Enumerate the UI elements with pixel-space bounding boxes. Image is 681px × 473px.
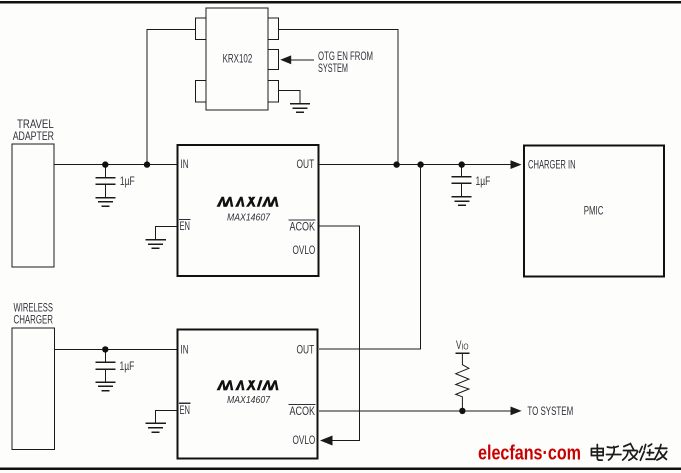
svg-text:SYSTEM: SYSTEM [318,63,348,75]
svg-text:IN: IN [181,159,189,171]
svg-text:KRX102: KRX102 [223,54,253,66]
svg-text:EN: EN [180,221,191,233]
svg-text:elecfans·com: elecfans·com [478,442,581,464]
svg-text:OUT: OUT [297,344,315,356]
svg-text:OTG EN FROM: OTG EN FROM [318,51,373,63]
svg-text:EN: EN [180,405,191,417]
svg-text:ACOK: ACOK [290,222,316,234]
svg-text:MAX14607: MAX14607 [227,395,270,406]
svg-text:ADAPTER: ADAPTER [13,131,54,143]
svg-text:1µF: 1µF [120,176,135,188]
svg-text:VIO: VIO [456,340,469,352]
svg-text:TO SYSTEM: TO SYSTEM [527,406,573,418]
svg-text:1µF: 1µF [476,176,491,188]
svg-text:ACOK: ACOK [290,406,316,418]
svg-text:OVLO: OVLO [293,435,316,447]
svg-text:1µF: 1µF [120,361,135,373]
svg-text:CHARGER: CHARGER [14,315,54,327]
svg-text:CHARGER IN: CHARGER IN [528,160,576,172]
svg-text:WIRELESS: WIRELESS [14,302,54,314]
svg-text:MAX14607: MAX14607 [227,212,270,223]
svg-text:OVLO: OVLO [293,245,316,257]
svg-text:TRAVEL: TRAVEL [17,119,54,131]
svg-text:OUT: OUT [297,159,315,171]
svg-text:IN: IN [181,344,189,356]
svg-text:PMIC: PMIC [584,206,604,218]
